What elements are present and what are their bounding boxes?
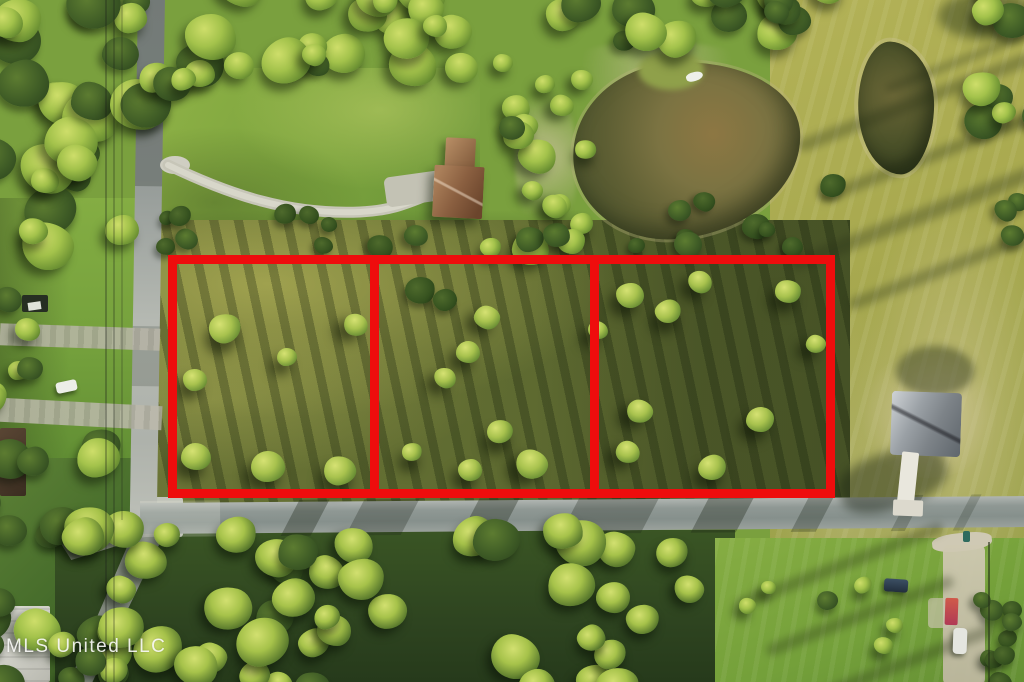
tree [271,201,298,227]
tree [14,317,41,342]
tree [0,489,3,518]
tree [782,236,804,256]
tree [761,580,776,594]
parcel-boundary-outline [168,255,835,498]
tree [441,49,481,86]
tree [885,618,902,634]
tree [173,226,201,253]
tree [624,603,660,636]
tree [545,560,597,608]
tree [671,572,708,607]
tree [298,205,319,224]
tree [548,92,576,119]
aerial-photo: MLS United LLC [0,0,1024,682]
power-line [105,0,107,682]
tree [30,168,59,194]
parcel-divider-2 [590,255,599,498]
tree [1020,100,1024,129]
tree [627,237,646,254]
tree [999,223,1024,248]
tree [213,513,259,556]
tree [595,581,632,615]
tree [668,200,691,221]
red-object [945,598,959,625]
tree [520,178,545,202]
power-line [121,0,123,520]
tree [690,189,716,214]
tree [758,221,776,238]
white-car-right [953,628,968,654]
tree [573,137,598,161]
tree [167,204,192,227]
tree [366,593,408,631]
tree [493,54,514,73]
tree [104,573,139,606]
dark-truck [884,578,909,593]
tree [819,172,848,199]
tree [401,221,431,249]
tree [16,356,43,381]
trailer-panel [28,301,42,311]
tree [314,237,333,254]
parcel-divider-1 [370,255,379,498]
utility-trailer [22,295,48,312]
tree [337,557,385,601]
tree [0,134,19,183]
tree [0,515,28,547]
tree [155,237,176,256]
tree [534,75,556,95]
tree [569,68,594,91]
tree [673,232,702,258]
tree [652,534,691,571]
tree [292,668,334,682]
power-line [113,0,115,682]
watermark: MLS United LLC [6,636,166,658]
tree [808,0,848,6]
trash-bin [963,531,970,542]
tree [852,574,874,595]
tree [815,589,839,612]
hedge-fence-line [988,542,990,682]
tree [873,636,894,655]
tree [321,216,339,232]
tree [0,659,30,682]
tree [738,597,757,614]
tree [214,0,271,11]
tree [303,0,341,13]
tree [988,672,1013,682]
